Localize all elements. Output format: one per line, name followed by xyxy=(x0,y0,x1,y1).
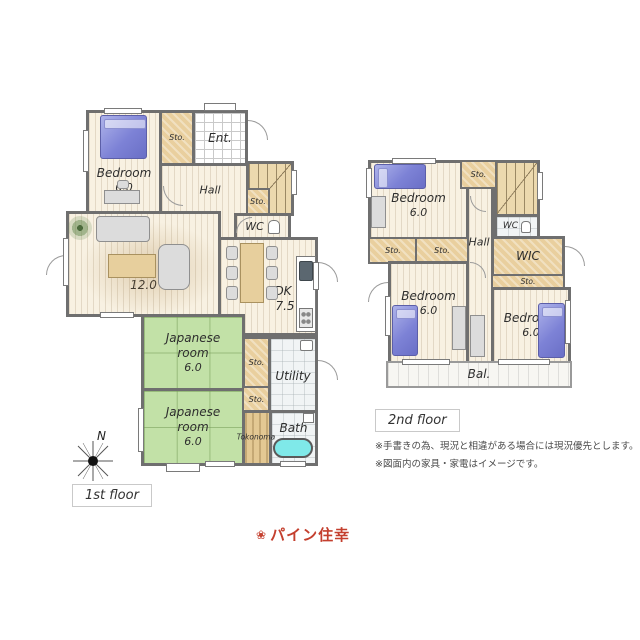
entrance-step xyxy=(204,103,236,111)
bed-icon xyxy=(100,115,147,159)
chair-icon xyxy=(226,246,238,260)
room-size-bedroom-2-2f: 6.0 xyxy=(420,304,438,318)
logo-text: パイン住幸 xyxy=(270,524,350,545)
room-label-bedroom-2-2f: Bedroom xyxy=(401,289,456,304)
bathtub-icon xyxy=(273,438,313,458)
desk-icon xyxy=(371,196,386,228)
door-arc xyxy=(318,262,338,282)
room-label-japanese-2-line1: Japanese xyxy=(166,405,221,420)
door-arc xyxy=(318,360,338,380)
room-label-storage-b-2f: Sto. xyxy=(385,246,401,256)
room-entrance-1f: Ent. xyxy=(192,110,248,166)
sofa-icon xyxy=(96,216,150,242)
bed-icon xyxy=(538,303,565,358)
room-size-dk-1f: 7.5 xyxy=(275,299,294,314)
room-label-tokonoma-1f: Tokonoma xyxy=(237,433,275,442)
bath-sink-icon xyxy=(303,413,314,423)
window xyxy=(291,170,297,195)
room-size-bedroom-1-2f: 6.0 xyxy=(410,206,428,220)
coffee-table-icon xyxy=(108,254,156,278)
room-label-balcony-2f: Bal. xyxy=(468,367,491,382)
room-storage-a-2f: Sto. xyxy=(460,160,497,189)
dining-table-icon xyxy=(240,243,264,303)
window xyxy=(63,238,69,286)
room-size-living-1f: 12.0 xyxy=(130,278,157,293)
room-label-entrance-1f: Ent. xyxy=(208,131,232,146)
logo-flower-icon: ❀ xyxy=(256,529,267,541)
room-japanese-1-1f: Japanese room 6.0 xyxy=(141,314,245,391)
stove-icon xyxy=(299,308,313,328)
chair-icon xyxy=(266,286,278,300)
room-label-hall-1f: Hall xyxy=(199,184,220,197)
floor-plan-canvas: Hall Sto. WC Bedroom 6.0 Sto. Ent. L 12.… xyxy=(0,0,640,640)
utility-sink-icon xyxy=(300,340,313,351)
room-label-japanese-2-line2: room xyxy=(177,420,208,435)
room-storage-d-1f: Sto. xyxy=(242,386,271,413)
room-storage-a-1f: Sto. xyxy=(159,110,195,166)
desk-icon xyxy=(470,315,485,357)
second-floor-caption: 2nd floor xyxy=(375,409,460,432)
room-storage-c-1f: Sto. xyxy=(242,336,271,389)
room-label-japanese-1-line2: room xyxy=(177,346,208,361)
chair-icon xyxy=(226,266,238,280)
room-storage-c-2f: Sto. xyxy=(415,237,469,264)
toilet-icon xyxy=(521,221,531,233)
desk-icon xyxy=(452,306,466,350)
first-floor-caption: 1st floor xyxy=(72,484,152,507)
plant-icon xyxy=(68,216,92,240)
room-label-storage-d-2f: Sto. xyxy=(521,277,536,286)
room-label-storage-a-1f: Sto. xyxy=(169,133,185,143)
door-arc xyxy=(248,120,268,140)
room-japanese-2-1f: Japanese room 6.0 xyxy=(141,388,245,466)
window xyxy=(313,262,319,290)
compass-icon: N xyxy=(71,435,115,483)
window xyxy=(537,172,543,200)
chair-icon xyxy=(266,266,278,280)
window xyxy=(83,130,89,172)
window xyxy=(392,158,436,164)
stairs-2f xyxy=(494,160,540,217)
window xyxy=(138,408,144,452)
room-label-storage-c-2f: Sto. xyxy=(434,246,450,256)
window xyxy=(205,461,235,467)
company-logo: ❀ パイン住幸 xyxy=(256,524,350,545)
bed-icon xyxy=(392,305,418,356)
room-wic-2f: WIC xyxy=(491,236,565,277)
room-label-utility-1f: Utility xyxy=(275,369,310,384)
room-label-japanese-1-line1: Japanese xyxy=(166,331,221,346)
desk-icon xyxy=(104,190,140,204)
room-label-wc-2f: WC xyxy=(503,221,518,232)
chair-icon xyxy=(266,246,278,260)
room-label-storage-d-1f: Sto. xyxy=(249,395,265,405)
compass-north-label: N xyxy=(97,429,106,443)
armchair-icon xyxy=(158,244,190,290)
window xyxy=(280,461,306,467)
kitchen-sink-icon xyxy=(299,261,313,281)
room-label-storage-c-1f: Sto. xyxy=(249,358,265,368)
veranda-step xyxy=(166,463,200,472)
room-size-japanese-1: 6.0 xyxy=(184,361,202,375)
balcony-2f: Bal. xyxy=(386,361,572,388)
window xyxy=(385,296,391,336)
door-arc xyxy=(565,246,585,266)
room-size-japanese-2: 6.0 xyxy=(184,435,202,449)
room-label-storage-stairs-1f: Sto. xyxy=(250,197,266,207)
window xyxy=(100,312,134,318)
chair-icon xyxy=(226,286,238,300)
window xyxy=(565,300,571,344)
room-storage-stairs-1f: Sto. xyxy=(246,188,270,216)
window xyxy=(402,359,450,365)
room-label-hall-2f: Hall xyxy=(468,236,489,249)
room-label-wic-2f: WIC xyxy=(516,249,540,264)
window xyxy=(366,168,372,198)
bed-icon xyxy=(374,164,426,189)
window xyxy=(498,359,550,365)
window xyxy=(104,108,142,114)
room-label-bath-1f: Bath xyxy=(280,421,308,436)
toilet-icon xyxy=(268,220,280,234)
room-storage-b-2f: Sto. xyxy=(368,237,418,264)
chair-icon xyxy=(117,180,129,189)
room-label-bedroom-1-2f: Bedroom xyxy=(391,191,446,206)
room-label-bedroom-1f: Bedroom xyxy=(97,166,152,181)
disclaimer-note-2: ※図面内の家具・家電はイメージです。 xyxy=(375,456,543,470)
disclaimer-note-1: ※手書きの為、現況と相違がある場合には現況優先とします。 xyxy=(375,438,639,452)
room-label-storage-a-2f: Sto. xyxy=(471,170,487,180)
